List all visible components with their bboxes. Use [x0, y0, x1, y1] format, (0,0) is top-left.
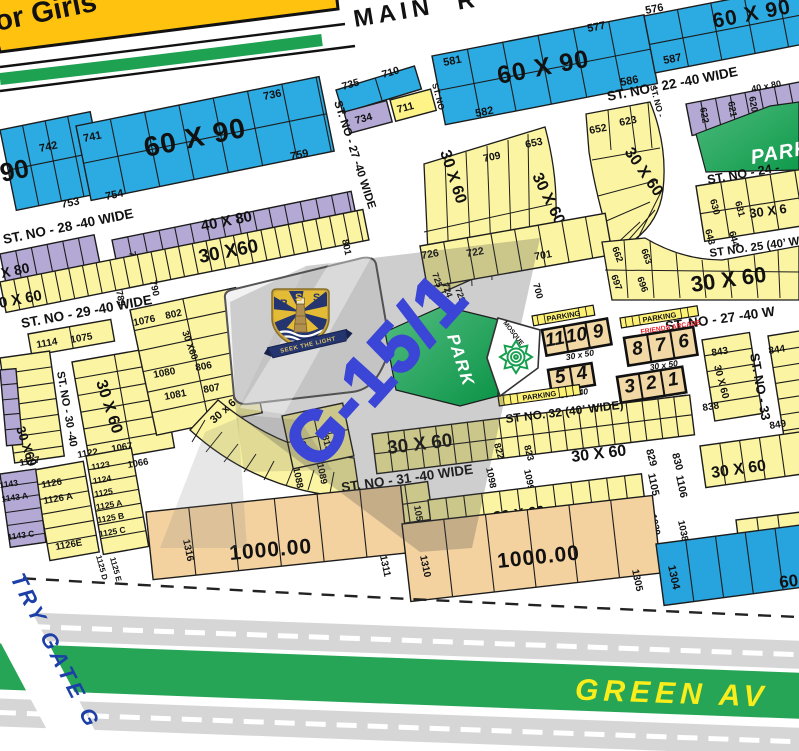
svg-text:10: 10: [564, 324, 589, 348]
svg-text:S: S: [295, 292, 302, 304]
svg-text:S: S: [313, 292, 320, 304]
svg-text:B: B: [280, 298, 288, 310]
svg-text:11: 11: [543, 328, 566, 352]
svg-text:60: 60: [778, 571, 799, 592]
